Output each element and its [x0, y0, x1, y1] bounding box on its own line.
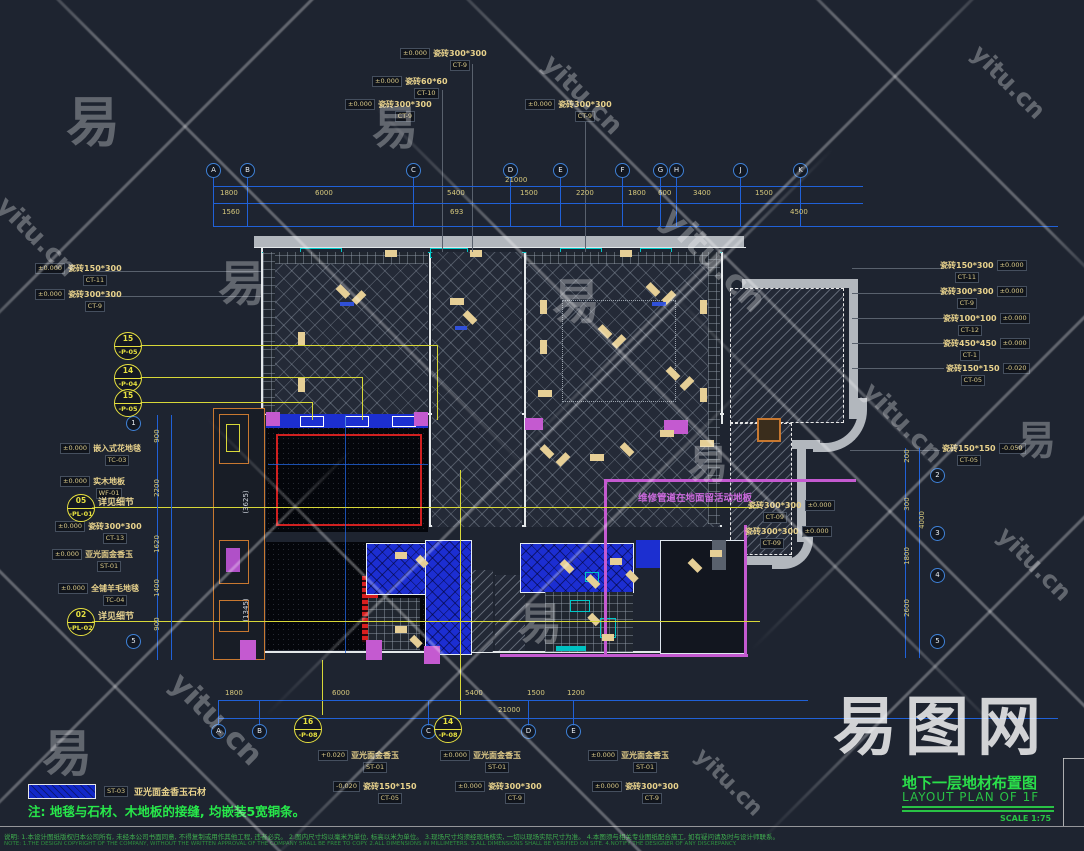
dim-text: 900 [153, 610, 161, 638]
elevation-tag: ±0.000 [997, 286, 1027, 297]
axis-tick [213, 178, 214, 226]
dim-text: 2600 [903, 594, 911, 622]
leader-line [442, 90, 443, 252]
axis-tick [218, 700, 219, 726]
material-code: CT-05 [378, 793, 403, 804]
callout-leader [460, 470, 461, 715]
cabinet-unit [345, 416, 369, 427]
dim-total: 4000 [918, 506, 926, 534]
elevation-tag: +0.020 [318, 750, 348, 761]
watermark-text: yitu.cn [536, 49, 628, 141]
magenta-wall-bottom [500, 654, 748, 657]
elevation-tag: ±0.000 [52, 549, 82, 560]
material-code: CT-09 [763, 512, 788, 523]
material-name: 嵌入式花地毯 [93, 443, 141, 454]
material-name: 瓷砖450*450 [943, 338, 997, 349]
material-code: CT-11 [955, 272, 980, 283]
watermark-line [762, 0, 1084, 299]
dim-text: 600 [658, 189, 671, 197]
column-magenta [424, 646, 440, 664]
axis-tick [622, 178, 623, 226]
elevation-tag: ±0.000 [802, 526, 832, 537]
furniture-blue [455, 326, 467, 330]
pipe-access-note: 维修管道在地面留活动地板 [638, 490, 752, 504]
furniture-block [540, 340, 547, 354]
grid-bubble: E [553, 163, 568, 178]
grid-bubble: E [566, 724, 581, 739]
axis-line [345, 415, 346, 653]
elevation-tag: ±0.000 [525, 99, 555, 110]
watermark-text: yitu.cn [690, 744, 768, 822]
cad-drawing-canvas[interactable]: A B C D E F G H J K A B C D E 1 5 2 3 4 … [0, 0, 1084, 851]
material-code: CT-05 [957, 455, 982, 466]
floor-room-b [432, 252, 522, 527]
material-code: ST-01 [633, 762, 657, 773]
furniture-block [590, 454, 604, 461]
leader-line [852, 343, 944, 344]
material-code: CT-9 [450, 60, 470, 71]
grid-bubble: B [252, 724, 267, 739]
dim-text: 1500 [755, 189, 773, 197]
dim-total: 21000 [498, 706, 520, 714]
callout-leader [322, 660, 323, 715]
furniture-block [538, 390, 552, 397]
callout-number: 05 [68, 495, 94, 509]
material-label: +0.020 亚光面金香玉 ST-01 [318, 750, 399, 773]
cabinet-unit [392, 416, 416, 427]
material-label: ±0.000 瓷砖150*300 CT-11 [35, 263, 122, 286]
elevation-tag: ±0.000 [345, 99, 375, 110]
furniture-block [450, 298, 464, 305]
fixture-cyan [556, 646, 586, 651]
elevation-tag: ±0.000 [35, 289, 65, 300]
dim-text: (1345) [242, 596, 250, 624]
title-underline [902, 810, 1054, 812]
material-code: CT-9 [85, 301, 105, 312]
material-name: 瓷砖300*300 [88, 521, 142, 532]
elevation-tag: -0.020 [333, 781, 360, 792]
dim-text: 1800 [903, 542, 911, 570]
material-label: ±0.000 瓷砖300*300 CT-9 [35, 289, 122, 312]
grid-bubble: 2 [930, 468, 945, 483]
grid-bubble: 4 [930, 568, 945, 583]
dim-text: 200 [903, 442, 911, 470]
furniture-block [298, 332, 305, 346]
material-name: 瓷砖150*300 [940, 260, 994, 271]
callout-leader [140, 345, 437, 346]
dim-text: 5400 [465, 689, 483, 697]
leader-line [850, 450, 940, 451]
callout-leader [312, 402, 313, 420]
watermark-text: yitu.cn [966, 39, 1051, 124]
terrace-hatch-upper [730, 288, 844, 423]
material-name: 瓷砖300*300 [745, 526, 799, 537]
dim-line [919, 448, 920, 658]
legend-swatch [28, 784, 96, 799]
corridor-column-core [226, 548, 240, 572]
elevation-tag: ±0.000 [455, 781, 485, 792]
see-detail-note: 详见细节 [98, 609, 134, 622]
callout-number: 15 [115, 390, 141, 404]
elevation-tag: ±0.000 [1000, 338, 1030, 349]
see-detail-note: 详见细节 [98, 495, 134, 508]
callout-code: -P-08 [435, 730, 461, 743]
title-block-border [1063, 758, 1064, 826]
floor-room-a [263, 252, 428, 414]
detail-callout: 15 -P-05 [114, 332, 142, 360]
axis-tick [676, 178, 677, 226]
material-code: CT-12 [958, 325, 983, 336]
material-label: 瓷砖300*300 ±0.000 CT-09 [748, 500, 835, 523]
furniture-block [710, 550, 722, 557]
callout-number: 14 [115, 365, 141, 379]
grid-bubble: 5 [930, 634, 945, 649]
furniture-block [298, 378, 305, 392]
material-label: 瓷砖150*150 -0.050 CT-05 [942, 443, 1026, 466]
elevation-tag: ±0.000 [60, 476, 90, 487]
material-code: CT-9 [957, 298, 977, 309]
material-code: CT-11 [83, 275, 108, 286]
callout-leader [140, 402, 312, 403]
callout-code: -PL-01 [68, 509, 94, 522]
material-code: CT-13 [103, 533, 128, 544]
material-name: 瓷砖300*300 [433, 48, 487, 59]
callout-code: -P-08 [295, 730, 321, 743]
axis-tick [413, 178, 414, 226]
watermark-text: yitu.cn [992, 521, 1077, 606]
dim-text: 5400 [447, 189, 465, 197]
material-name: 亚光面金香玉 [621, 750, 669, 761]
material-name: 亚光面金香玉 [85, 549, 133, 560]
footer-notes-cn: 说明: 1.本设计图纸版权归本公司所有, 未经本公司书面同意, 不得复制或用作其… [4, 831, 1084, 841]
material-code: CT-9 [395, 111, 415, 122]
elevation-tag: ±0.000 [588, 750, 618, 761]
material-label: -0.020 瓷砖150*150 CT-05 [333, 781, 417, 804]
dim-text: 6000 [332, 689, 350, 697]
magenta-wall-vertical [604, 479, 607, 657]
material-name: 瓷砖300*300 [940, 286, 994, 297]
tile-border-band [263, 252, 275, 414]
detail-callout: 16 -P-08 [294, 715, 322, 743]
detail-callout: 14 -P-08 [434, 715, 462, 743]
axis-tick [528, 700, 529, 726]
material-name: 瓷砖150*150 [946, 363, 1000, 374]
material-code: CT-05 [961, 375, 986, 386]
wall-divider-ab [429, 252, 431, 527]
column-magenta [366, 640, 382, 660]
dim-text: 3400 [693, 189, 711, 197]
title-block-border [1063, 758, 1084, 759]
dim-text: 1200 [567, 689, 585, 697]
elevation-tag: ±0.000 [805, 500, 835, 511]
dim-text: 2200 [153, 474, 161, 502]
material-name: 全铺羊毛地毯 [91, 583, 139, 594]
material-name: 实木地板 [93, 476, 125, 487]
dim-text: 4500 [790, 208, 808, 216]
elevation-tag: ±0.000 [55, 521, 85, 532]
material-name: 瓷砖150*150 [942, 443, 996, 454]
material-name: 瓷砖300*300 [488, 781, 542, 792]
dim-line [218, 700, 808, 701]
dim-text: 1620 [153, 530, 161, 558]
callout-number: 02 [68, 609, 94, 623]
dim-line [218, 718, 1058, 719]
legend-material-name: 亚光面金香玉石材 [134, 785, 206, 798]
grid-bubble: F [615, 163, 630, 178]
dim-text: (3625) [242, 488, 250, 516]
terrace-wall-top [742, 279, 858, 288]
material-label: ±0.000 嵌入式花地毯 TC-03 [60, 443, 141, 466]
material-label: 瓷砖300*300 ±0.000 CT-09 [745, 526, 832, 549]
watermark-text: yitu.cn [163, 666, 270, 773]
callout-leader [362, 377, 363, 420]
furniture-block [700, 388, 707, 402]
furniture-block [395, 552, 407, 559]
grid-bubble: B [240, 163, 255, 178]
detail-callout: 02 -PL-02 [67, 608, 95, 636]
elevation-tag: ±0.000 [35, 263, 65, 274]
furniture-block [540, 300, 547, 314]
material-label: ±0.000 瓷砖300*300 CT-9 [525, 99, 612, 122]
terrace-planter [757, 418, 781, 442]
dim-text: 1400 [153, 574, 161, 602]
callout-leader [92, 621, 760, 622]
material-name: 亚光面金香玉 [473, 750, 521, 761]
material-label: ±0.000 瓷砖300*300 CT-13 [55, 521, 142, 544]
callout-leader [92, 507, 760, 508]
material-code: ST-01 [363, 762, 387, 773]
grid-bubble: D [521, 724, 536, 739]
elevation-tag: -0.020 [1003, 363, 1030, 374]
dim-text: 6000 [315, 189, 333, 197]
wall-bottom [262, 651, 727, 653]
callout-leader [437, 345, 438, 420]
grid-bubble: 1 [126, 416, 141, 431]
material-label: ±0.000 亚光面金香玉 ST-01 [440, 750, 521, 773]
footer-notes-en: NOTE: 1.THE DESIGN COPYRIGHT OF THE COMP… [4, 841, 1084, 847]
material-name: 瓷砖150*300 [68, 263, 122, 274]
elevation-tag: ±0.000 [997, 260, 1027, 271]
grid-bubble: 5 [126, 634, 141, 649]
dim-text: 693 [450, 208, 463, 216]
detail-callout: 15 -P-05 [114, 389, 142, 417]
seam-note: 注: 地毯与石材、木地板的接缝, 均嵌装5宽铜条。 [28, 801, 305, 820]
column-magenta [525, 418, 543, 430]
material-label: ±0.000 亚光面金香玉 ST-01 [52, 549, 133, 572]
material-label: ±0.000 全铺羊毛地毯 TC-04 [58, 583, 139, 606]
dim-line [213, 203, 863, 204]
grid-bubble: K [793, 163, 808, 178]
material-code: ST-01 [485, 762, 509, 773]
material-label: 瓷砖450*450 ±0.000 CT-1 [943, 338, 1030, 361]
elevation-tag: -0.050 [999, 443, 1026, 454]
material-code: CT-09 [760, 538, 785, 549]
dim-total: 21000 [505, 176, 527, 184]
grid-bubble: 3 [930, 526, 945, 541]
dim-text: 900 [153, 422, 161, 450]
dim-text: 1800 [628, 189, 646, 197]
material-label: 瓷砖150*150 -0.020 CT-05 [946, 363, 1030, 386]
drawing-title-en: LAYOUT PLAN OF 1F [902, 790, 1039, 804]
material-name: 瓷砖60*60 [405, 76, 447, 87]
material-name: 瓷砖300*300 [748, 500, 802, 511]
exterior-wall-top [254, 236, 744, 247]
material-label: ±0.000 瓷砖300*300 CT-9 [400, 48, 487, 71]
furniture-block [620, 250, 632, 257]
axis-tick [259, 700, 260, 726]
legend-code: ST-03 [104, 786, 128, 797]
axis-tick [740, 178, 741, 226]
furniture-block [395, 626, 407, 633]
furniture-blue [340, 302, 354, 306]
axis-line [268, 464, 428, 465]
leader-line [852, 268, 944, 269]
furniture-block [700, 440, 714, 447]
elevation-tag: ±0.000 [372, 76, 402, 87]
axis-tick [573, 700, 574, 726]
dim-text: 1800 [220, 189, 238, 197]
material-label: ±0.000 瓷砖300*300 CT-9 [592, 781, 679, 804]
floor-blue-corridor [425, 540, 472, 655]
callout-leader [140, 377, 362, 378]
room-right-lower [660, 540, 747, 654]
footer-separator [0, 826, 1084, 827]
material-code: CT-9 [505, 793, 525, 804]
leader-line [585, 116, 586, 252]
callout-code: -P-05 [115, 347, 141, 360]
wall-right-upper [721, 252, 723, 424]
material-label: 瓷砖150*300 ±0.000 CT-11 [940, 260, 1027, 283]
axis-tick [800, 178, 801, 226]
material-code: ST-01 [97, 561, 121, 572]
watermark-brand: 易图网 [833, 676, 1049, 768]
tile-border-band [708, 252, 720, 524]
magenta-wall-horizontal [604, 479, 856, 482]
dim-text: 1560 [222, 208, 240, 216]
elevation-tag: ±0.000 [592, 781, 622, 792]
dim-line [213, 226, 1058, 227]
grid-bubble: G [653, 163, 668, 178]
dim-text: 2200 [576, 189, 594, 197]
callout-number: 15 [115, 333, 141, 347]
material-name: 瓷砖300*300 [378, 99, 432, 110]
furniture-block [385, 250, 397, 257]
material-code: CT-10 [414, 88, 439, 99]
elevation-tag: ±0.000 [1000, 313, 1030, 324]
grid-bubble: H [669, 163, 684, 178]
material-code: CT-9 [575, 111, 595, 122]
material-label: ±0.000 瓷砖60*60 CT-10 [372, 76, 448, 99]
furniture-block [602, 634, 614, 641]
material-code: TC-03 [105, 455, 130, 466]
tile-border-band [263, 252, 428, 264]
material-code: CT-1 [960, 350, 980, 361]
floor-blue-closet [636, 540, 662, 568]
material-name: 瓷砖300*300 [558, 99, 612, 110]
axis-tick [247, 178, 248, 226]
elevation-tag: ±0.000 [58, 583, 88, 594]
material-name: 瓷砖300*300 [625, 781, 679, 792]
dim-text: 1500 [520, 189, 538, 197]
leader-line [852, 293, 944, 294]
material-label: ±0.000 亚光面金香玉 ST-01 [588, 750, 669, 773]
callout-number: 16 [295, 716, 321, 730]
hall-carpet-inset [562, 300, 676, 402]
callout-code: -PL-02 [68, 623, 94, 636]
elevation-tag: ±0.000 [440, 750, 470, 761]
column-magenta [240, 640, 256, 660]
detail-callout: 14 -P-04 [114, 364, 142, 392]
detail-callout: 05 -PL-01 [67, 494, 95, 522]
carpet-red-border [276, 434, 422, 526]
corridor-column-core [226, 424, 240, 452]
floor-blue-room-2 [520, 543, 634, 593]
furniture-blue [652, 302, 666, 306]
grid-bubble: A [211, 724, 226, 739]
column-magenta [266, 412, 280, 426]
material-code: CT-9 [642, 793, 662, 804]
watermark-char: 易 [218, 244, 266, 314]
axis-tick [560, 178, 561, 226]
grid-bubble: A [206, 163, 221, 178]
dim-text: 1500 [527, 689, 545, 697]
furniture-block [610, 558, 622, 565]
elevation-tag: ±0.000 [400, 48, 430, 59]
material-code: TC-04 [103, 595, 128, 606]
title-underline [902, 806, 1054, 808]
material-name: 亚光面金香玉 [351, 750, 399, 761]
column-magenta [414, 412, 428, 426]
callout-code: -P-05 [115, 404, 141, 417]
axis-tick [510, 178, 511, 226]
material-name: 瓷砖150*150 [363, 781, 417, 792]
material-label: 瓷砖300*300 ±0.000 CT-9 [940, 286, 1027, 309]
material-name: 瓷砖300*300 [68, 289, 122, 300]
axis-tick [660, 178, 661, 226]
material-name: 瓷砖100*100 [943, 313, 997, 324]
grid-bubble: C [406, 163, 421, 178]
material-label: 瓷砖100*100 ±0.000 CT-12 [943, 313, 1030, 336]
toilet-fixture [570, 600, 590, 612]
dim-line [213, 186, 863, 187]
watermark-char: 易 [66, 78, 120, 157]
furniture-block [700, 300, 707, 314]
furniture-block [660, 430, 674, 437]
material-label: ±0.000 瓷砖300*300 CT-9 [455, 781, 542, 804]
leader-line [852, 368, 944, 369]
drawing-scale: SCALE 1:75 [1000, 814, 1051, 823]
leader-line [852, 318, 944, 319]
dim-text: 1800 [225, 689, 243, 697]
leader-line [472, 64, 473, 252]
callout-number: 14 [435, 716, 461, 730]
elevation-tag: ±0.000 [60, 443, 90, 454]
material-label: ±0.000 瓷砖300*300 CT-9 [345, 99, 432, 122]
dim-text: 300 [903, 490, 911, 518]
dim-line [171, 415, 172, 660]
axis-tick [428, 700, 429, 726]
grid-bubble: J [733, 163, 748, 178]
watermark-char: 易 [42, 714, 92, 786]
